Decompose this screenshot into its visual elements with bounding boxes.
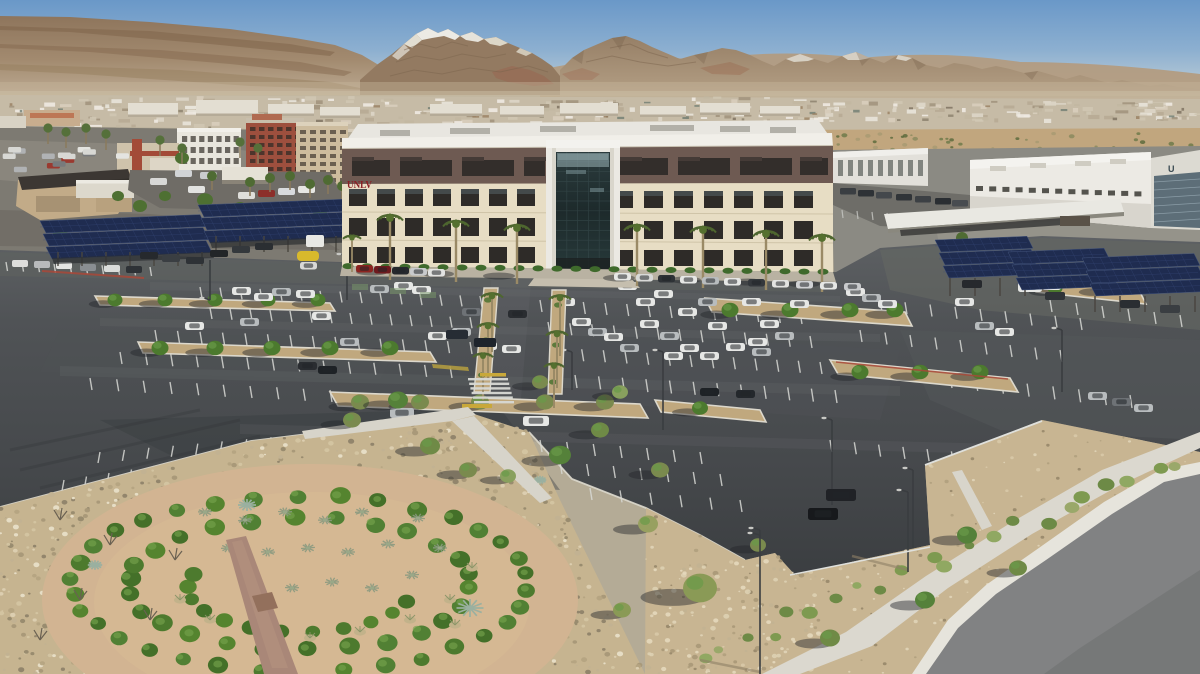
- svg-text:U: U: [1168, 164, 1175, 174]
- svg-text:UNLV: UNLV: [347, 180, 373, 191]
